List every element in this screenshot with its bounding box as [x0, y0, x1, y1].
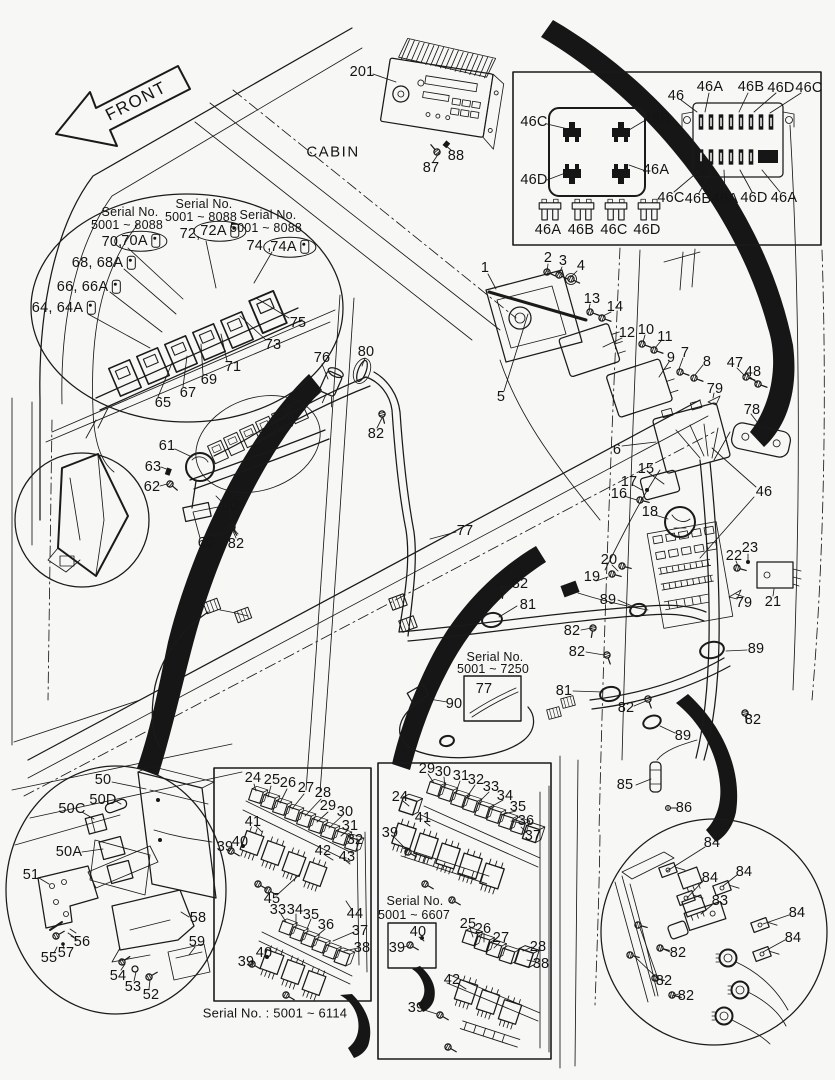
part-label-text: 46B	[644, 112, 670, 127]
parts-diagram-page: FRONTCABIN201888746C46B46D46A4646A46B46D…	[0, 0, 835, 1080]
part-label-text: 46B	[568, 223, 594, 238]
part-label: 55	[41, 951, 58, 966]
part-label: 78	[744, 403, 761, 418]
part-label-text: 16	[611, 487, 628, 502]
part-label: 13	[584, 292, 601, 307]
part-label: 82	[678, 989, 695, 1004]
part-label-text: 82	[564, 624, 581, 639]
part-label: 46A	[712, 192, 738, 207]
part-label-text: 71	[225, 360, 242, 375]
part-label: 46C	[657, 191, 684, 206]
part-label: 46C	[520, 115, 547, 130]
part-label-text: 82	[678, 989, 695, 1004]
part-label-text: 37	[352, 924, 369, 939]
part-label: 46D	[767, 81, 794, 96]
part-label-text: 36	[518, 814, 535, 829]
part-label-text: 27	[493, 931, 510, 946]
part-label: 12	[619, 326, 636, 341]
part-label: CABIN	[306, 145, 359, 160]
part-label: 60	[198, 536, 215, 551]
part-label: 22	[726, 549, 743, 564]
part-label: 83	[712, 894, 729, 909]
part-label-text: 6	[613, 443, 621, 458]
part-label: 84	[789, 906, 806, 921]
part-label: 40	[410, 925, 427, 940]
fuse-link-icon	[87, 301, 96, 315]
part-label: 19	[584, 570, 601, 585]
part-label: 82	[368, 427, 385, 442]
part-label: 33	[270, 903, 287, 918]
part-label: 28	[530, 940, 547, 955]
part-label-text: 66, 66A	[57, 280, 108, 295]
part-label-text: 1	[481, 261, 489, 276]
part-label-text: 46B	[738, 80, 764, 95]
part-label-text: 70A	[121, 234, 147, 249]
part-label-text: 78	[744, 403, 761, 418]
part-label-text: 63	[145, 460, 162, 475]
part-label: 46	[668, 89, 685, 104]
part-label-text: 46A	[535, 223, 561, 238]
part-label-text: 5	[497, 390, 505, 405]
part-label: 24	[245, 771, 262, 786]
part-label: 26	[280, 776, 297, 791]
part-label-text: 83	[712, 894, 729, 909]
part-label: 66, 66A	[57, 280, 121, 295]
part-label-text: Serial No.	[387, 895, 444, 908]
part-label-text: 23	[742, 541, 759, 556]
part-label-text: 39	[238, 955, 255, 970]
part-label-text: 50C	[58, 802, 85, 817]
part-label-text: 53	[125, 980, 142, 995]
part-label: 89	[600, 593, 617, 608]
part-label: 50C	[58, 802, 85, 817]
part-label-text: 43	[339, 850, 356, 865]
part-label-text: 89	[748, 642, 765, 657]
part-label: 46A	[697, 80, 723, 95]
part-label: 76	[314, 351, 331, 366]
part-label: 48	[745, 365, 762, 380]
part-label-text: 42	[315, 844, 332, 859]
part-label-text: 40	[410, 925, 427, 940]
part-label-text: 69	[201, 373, 218, 388]
part-label: 39	[389, 941, 406, 956]
part-label: 40	[232, 835, 249, 850]
part-label: 21	[765, 595, 782, 610]
part-label: 39	[238, 955, 255, 970]
part-label: 46C	[795, 81, 822, 96]
part-label-text: 56	[74, 935, 91, 950]
part-label: 87	[423, 161, 440, 176]
part-label-text: 46D	[740, 191, 767, 206]
part-label-text: 36	[318, 918, 335, 933]
part-label: 46C	[600, 223, 627, 238]
part-label-text: 61	[159, 439, 176, 454]
part-label-text: 84	[785, 931, 802, 946]
part-label-text: 79	[736, 596, 753, 611]
part-label: 26	[475, 922, 492, 937]
part-label: 46B	[644, 112, 670, 127]
part-label: Serial No.	[387, 895, 444, 908]
part-label: 51	[23, 868, 40, 883]
part-label: 30	[435, 765, 452, 780]
part-label-text: 19	[584, 570, 601, 585]
part-label-text: 88	[448, 149, 465, 164]
part-label-text: 81	[556, 684, 573, 699]
fuse-link-icon	[127, 256, 136, 270]
part-label-text: 14	[607, 300, 624, 315]
part-label-text: 64, 64A	[32, 301, 83, 316]
part-label-text: 46	[756, 485, 773, 500]
fuse-link-icon	[152, 234, 161, 248]
part-label-text: 201	[350, 65, 375, 80]
part-label: 81	[520, 598, 537, 613]
part-label-text: 12	[619, 326, 636, 341]
part-label: 80	[222, 499, 239, 514]
part-label-text: 77	[476, 682, 493, 697]
part-label: 88	[448, 149, 465, 164]
part-label-text: 46C	[600, 223, 627, 238]
part-label: 73	[265, 338, 282, 353]
part-label-text: 80	[222, 499, 239, 514]
part-label-text: 46A	[697, 80, 723, 95]
part-label-text: 68, 68A	[72, 256, 123, 271]
part-label-text: 46D	[633, 223, 660, 238]
part-label-text: 5001 ~ 8088	[91, 219, 163, 232]
part-label: 42	[444, 973, 461, 988]
part-label: 41	[415, 811, 432, 826]
part-label-text: 46A	[643, 163, 669, 178]
part-label-text: 28	[530, 940, 547, 955]
part-label-text: 44	[347, 907, 364, 922]
part-label: 71	[225, 360, 242, 375]
part-label-text: 39	[382, 826, 399, 841]
part-label-text: 73	[265, 338, 282, 353]
part-label-text: 84	[736, 865, 753, 880]
part-label: 77	[457, 524, 474, 539]
part-label-text: 84	[702, 871, 719, 886]
part-label: 74A	[263, 237, 316, 258]
part-label: 80	[358, 345, 375, 360]
part-label: 90	[446, 697, 463, 712]
fuse-link-icon	[231, 224, 240, 238]
part-label-text: 86	[676, 801, 693, 816]
part-label: 46B	[568, 223, 594, 238]
part-label-text: 48	[745, 365, 762, 380]
part-label-text: 82	[745, 713, 762, 728]
part-label: 89	[748, 642, 765, 657]
part-label: 82	[564, 624, 581, 639]
part-label: 56	[74, 935, 91, 950]
part-label-text: 38	[533, 957, 550, 972]
part-label: 38	[533, 957, 550, 972]
part-label: 41	[245, 815, 262, 830]
part-label: 37	[352, 924, 369, 939]
part-label: 79	[736, 596, 753, 611]
part-label-text: 82	[512, 577, 529, 592]
part-label-text: 38	[354, 941, 371, 956]
part-label-text: CABIN	[306, 145, 359, 160]
part-labels-layer: FRONTCABIN201888746C46B46D46A4646A46B46D…	[0, 0, 835, 1080]
part-label-text: 13	[584, 292, 601, 307]
part-label-text: 80	[358, 345, 375, 360]
part-label-text: 39	[217, 840, 234, 855]
part-label: 24	[392, 790, 409, 805]
part-label: 62	[144, 480, 161, 495]
part-label: 2	[544, 251, 552, 266]
part-label: 10	[638, 323, 655, 338]
part-label-text: 62	[144, 480, 161, 495]
part-label: 5001 ~ 7250	[457, 663, 529, 676]
part-label-text: 82	[569, 645, 586, 660]
part-label: Serial No.	[102, 206, 159, 219]
part-label-text: 5001 ~ 7250	[457, 663, 529, 676]
part-label-text: 85	[617, 778, 634, 793]
part-label-text: Serial No.	[102, 206, 159, 219]
part-label-text: 39	[408, 1001, 425, 1016]
part-label-text: 50	[95, 773, 112, 788]
part-label-text: Serial No. : 5001 ~ 6114	[203, 1007, 347, 1020]
part-label: 52	[143, 988, 160, 1003]
part-label: 77	[476, 682, 493, 697]
part-label: 46A	[535, 223, 561, 238]
part-label-text: 22	[726, 549, 743, 564]
part-label: 7	[681, 346, 689, 361]
part-label: FRONT	[103, 78, 170, 123]
part-label-text: 29	[320, 799, 337, 814]
part-label: 46B	[738, 80, 764, 95]
part-label: 65	[155, 396, 172, 411]
part-label-text: 50A	[56, 845, 82, 860]
part-label-text: 82	[656, 974, 673, 989]
part-label-text: 40	[232, 835, 249, 850]
part-label: 86	[676, 801, 693, 816]
part-label: 16	[611, 487, 628, 502]
part-label: 89	[675, 729, 692, 744]
part-label: 82	[228, 537, 245, 552]
part-label: 50A	[56, 845, 82, 860]
part-label-text: 18	[642, 505, 659, 520]
part-label-text: 4	[577, 259, 585, 274]
part-label: 81	[556, 684, 573, 699]
part-label: 40	[256, 946, 273, 961]
fuse-link-icon	[301, 240, 310, 254]
part-label: 82	[656, 974, 673, 989]
part-label: 39	[217, 840, 234, 855]
part-label: 79	[707, 382, 724, 397]
part-label-text: 46C	[795, 81, 822, 96]
part-label-text: 46D	[767, 81, 794, 96]
part-label: 32	[347, 833, 364, 848]
part-label: Serial No.	[240, 209, 297, 222]
part-label: 59	[189, 935, 206, 950]
part-label: 53	[125, 980, 142, 995]
part-label: 37	[525, 829, 542, 844]
part-label-text: 65	[155, 396, 172, 411]
part-label-text: 82	[228, 537, 245, 552]
part-label: 36	[518, 814, 535, 829]
part-label-text: 32	[347, 833, 364, 848]
part-label-text: 3	[559, 254, 567, 269]
part-label: 29	[419, 762, 436, 777]
part-label-text: 87	[423, 161, 440, 176]
part-label-text: 77	[457, 524, 474, 539]
part-label: 1	[481, 261, 489, 276]
part-label: 46	[756, 485, 773, 500]
part-label: 84	[702, 871, 719, 886]
part-label-text: 5001 ~ 6607	[378, 909, 450, 922]
part-label-text: 25	[264, 773, 281, 788]
part-label: 5001 ~ 8088	[91, 219, 163, 232]
part-label-text: Serial No.	[240, 209, 297, 222]
part-label: 50D	[89, 793, 116, 808]
part-label: 23	[742, 541, 759, 556]
part-label: 29	[320, 799, 337, 814]
part-label-text: 82	[670, 946, 687, 961]
part-label-text: Serial No.	[176, 198, 233, 211]
part-label-text: 57	[58, 946, 75, 961]
part-label-text: 75	[290, 316, 307, 331]
part-label: 82	[512, 577, 529, 592]
part-label: 82	[745, 713, 762, 728]
part-label-text: 58	[190, 911, 207, 926]
part-label-text: 39	[389, 941, 406, 956]
part-label-text: 47	[727, 356, 744, 371]
part-label-text: 15	[638, 462, 655, 477]
part-label: Serial No.	[176, 198, 233, 211]
part-label-text: 26	[475, 922, 492, 937]
part-label: 14	[607, 300, 624, 315]
part-label-text: 24	[392, 790, 409, 805]
part-label-text: 2	[544, 251, 552, 266]
part-label-text: 41	[245, 815, 262, 830]
part-label-text: 30	[435, 765, 452, 780]
part-label: 75	[290, 316, 307, 331]
part-label-text: 51	[23, 868, 40, 883]
part-label: 20	[601, 553, 618, 568]
part-label: 18	[642, 505, 659, 520]
part-label: 82	[670, 946, 687, 961]
part-label: 64, 64A	[32, 301, 96, 316]
part-label-text: 37	[525, 829, 542, 844]
part-label-text: 89	[600, 593, 617, 608]
part-label: 84	[704, 836, 721, 851]
fuse-link-icon	[112, 280, 121, 294]
part-label: 57	[58, 946, 75, 961]
part-label-text: 89	[675, 729, 692, 744]
part-label: 42	[315, 844, 332, 859]
part-label-text: 46A	[712, 192, 738, 207]
part-label-text: 84	[704, 836, 721, 851]
part-label-text: 26	[280, 776, 297, 791]
part-label: 8	[703, 355, 711, 370]
part-label: 82	[618, 701, 635, 716]
part-label-text: 34	[287, 903, 304, 918]
part-label-text: 50D	[89, 793, 116, 808]
part-label: 70A	[114, 231, 167, 252]
part-label: 39	[408, 1001, 425, 1016]
part-label-text: 82	[618, 701, 635, 716]
part-label: 5	[497, 390, 505, 405]
part-label-text: 33	[270, 903, 287, 918]
part-label: 25	[264, 773, 281, 788]
part-label: 34	[287, 903, 304, 918]
part-label: 201	[350, 65, 375, 80]
part-label-text: 46D	[520, 173, 547, 188]
part-label-text: 9	[667, 351, 675, 366]
part-label: 61	[159, 439, 176, 454]
part-label: 43	[339, 850, 356, 865]
part-label: 46D	[740, 191, 767, 206]
part-label: 36	[318, 918, 335, 933]
part-label: 50	[95, 773, 112, 788]
part-label: 27	[298, 781, 315, 796]
part-label-text: 46C	[520, 115, 547, 130]
part-label-text: 10	[638, 323, 655, 338]
part-label-text: 40	[256, 946, 273, 961]
part-label: 4	[577, 259, 585, 274]
part-label-text: 60	[198, 536, 215, 551]
part-label-text: 42	[444, 973, 461, 988]
part-label: 44	[347, 907, 364, 922]
part-label: 84	[785, 931, 802, 946]
part-label: 46A	[771, 191, 797, 206]
part-label: 82	[569, 645, 586, 660]
part-label: 15	[638, 462, 655, 477]
part-label-text: 76	[314, 351, 331, 366]
part-label-text: 52	[143, 988, 160, 1003]
part-label: 27	[493, 931, 510, 946]
part-label-text: 81	[520, 598, 537, 613]
part-label-text: 46C	[657, 191, 684, 206]
part-label: 6	[613, 443, 621, 458]
part-label: 46D	[520, 173, 547, 188]
part-label-text: 84	[789, 906, 806, 921]
part-label-text: 46B	[685, 192, 711, 207]
part-label: 63	[145, 460, 162, 475]
part-label-text: 8	[703, 355, 711, 370]
part-label: 11	[657, 330, 672, 345]
part-label: 5001 ~ 6607	[378, 909, 450, 922]
part-label-text: 67	[180, 386, 197, 401]
part-label-text: 7	[681, 346, 689, 361]
part-label: 85	[617, 778, 634, 793]
part-label-text: 27	[298, 781, 315, 796]
part-label: 68, 68A	[72, 256, 136, 271]
part-label-text: FRONT	[103, 78, 170, 123]
part-label-text: 21	[765, 595, 782, 610]
part-label: 69	[201, 373, 218, 388]
part-label-text: 46	[668, 89, 685, 104]
part-label: 67	[180, 386, 197, 401]
part-label: 84	[736, 865, 753, 880]
part-label-text: 46A	[771, 191, 797, 206]
part-label: 3	[559, 254, 567, 269]
part-label-text: 79	[707, 382, 724, 397]
part-label-text: 11	[657, 330, 672, 345]
part-label: Serial No. : 5001 ~ 6114	[203, 1007, 347, 1020]
part-label-text: 59	[189, 935, 206, 950]
part-label: 39	[382, 826, 399, 841]
part-label: 58	[190, 911, 207, 926]
part-label-text: 20	[601, 553, 618, 568]
part-label-text: 74A	[270, 240, 296, 255]
part-label-text: 90	[446, 697, 463, 712]
part-label-text: 72A	[200, 224, 226, 239]
part-label: 9	[667, 351, 675, 366]
part-label: 46A	[643, 163, 669, 178]
part-label: 72A	[193, 221, 246, 242]
part-label-text: 29	[419, 762, 436, 777]
